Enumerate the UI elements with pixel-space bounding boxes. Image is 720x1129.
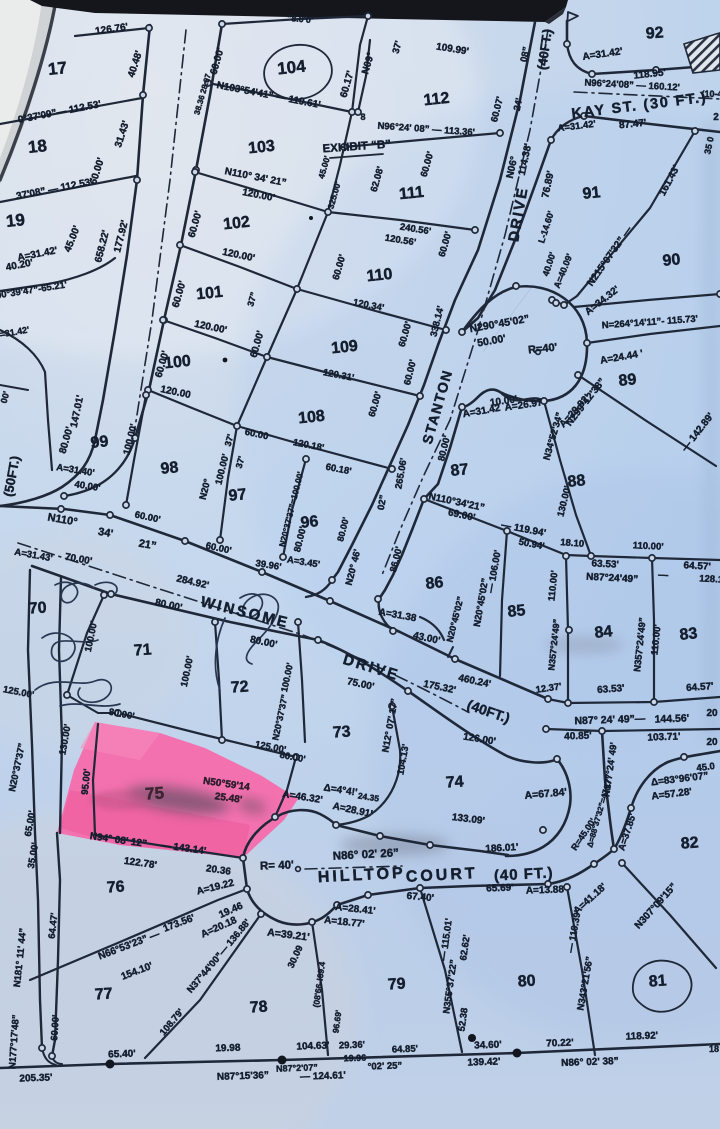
svg-text:101: 101 [195, 284, 223, 304]
svg-text:N86° 02' 38”: N86° 02' 38” [561, 1056, 619, 1069]
svg-text:87: 87 [450, 461, 470, 480]
svg-text:109: 109 [330, 338, 358, 358]
svg-text:84: 84 [594, 623, 614, 642]
svg-text:90: 90 [662, 251, 682, 270]
svg-text:°02' 25”: °02' 25” [367, 1060, 402, 1072]
svg-text:70: 70 [28, 599, 47, 617]
svg-text:186.01': 186.01' [485, 842, 518, 855]
svg-text:104: 104 [276, 57, 307, 79]
svg-text:(10-4: (10-4 [701, 89, 720, 99]
svg-text:97: 97 [228, 486, 248, 505]
svg-text:77: 77 [94, 985, 113, 1003]
svg-text:92: 92 [645, 24, 664, 42]
svg-text:20: 20 [706, 708, 718, 719]
svg-text:83: 83 [679, 625, 699, 644]
svg-text:144.56': 144.56' [654, 712, 689, 725]
svg-text:A=13.88: A=13.88 [526, 884, 565, 896]
svg-text:102: 102 [222, 214, 250, 234]
svg-text:85: 85 [507, 602, 527, 621]
svg-text:8: 8 [360, 112, 365, 122]
svg-text:64.85': 64.85' [392, 1044, 418, 1056]
svg-text:19.98: 19.98 [215, 1043, 241, 1055]
svg-text:103: 103 [247, 138, 275, 158]
svg-text:73: 73 [332, 723, 351, 741]
svg-text:74: 74 [445, 773, 464, 791]
svg-text:99: 99 [90, 433, 110, 452]
svg-text:40.85': 40.85' [564, 731, 592, 743]
svg-text:34.60': 34.60' [474, 1040, 502, 1052]
svg-text:76: 76 [106, 878, 125, 896]
svg-text:112: 112 [423, 90, 451, 110]
svg-text:65.69': 65.69' [486, 883, 514, 895]
svg-text:205.35': 205.35' [19, 1072, 52, 1084]
svg-text:82: 82 [680, 834, 699, 852]
svg-text:63.53': 63.53' [597, 683, 625, 696]
svg-text:(40 FT.): (40 FT.) [494, 864, 554, 884]
svg-text:72: 72 [230, 678, 249, 696]
svg-text:111: 111 [398, 184, 425, 204]
svg-text:65.40': 65.40' [108, 1049, 136, 1061]
svg-text:64.57': 64.57' [683, 560, 711, 572]
svg-text:81: 81 [648, 972, 667, 990]
svg-text:71: 71 [133, 641, 152, 659]
svg-text:89: 89 [618, 371, 638, 390]
svg-text:118.92': 118.92' [626, 1030, 659, 1042]
svg-text:18: 18 [709, 1044, 719, 1054]
svg-text:79: 79 [387, 975, 406, 993]
svg-text:17: 17 [47, 58, 68, 79]
svg-text:80: 80 [517, 972, 536, 990]
svg-text:—: — [658, 570, 669, 582]
svg-text:N87°15'36”: N87°15'36” [217, 1070, 269, 1083]
svg-text:110.00': 110.00' [632, 540, 663, 553]
svg-text:139.42': 139.42' [467, 1056, 500, 1068]
svg-text:104.63': 104.63' [296, 1040, 329, 1052]
svg-text:18: 18 [27, 136, 48, 157]
svg-text:63.53': 63.53' [591, 558, 619, 570]
svg-text:91: 91 [582, 184, 602, 203]
svg-text:19: 19 [5, 210, 26, 231]
svg-text:29.36': 29.36' [339, 1040, 365, 1052]
svg-text:128.1: 128.1 [699, 573, 720, 585]
svg-text:103.71': 103.71' [647, 731, 680, 743]
svg-text:18.10: 18.10 [560, 537, 584, 550]
svg-text:N87°2'07”: N87°2'07” [276, 1062, 318, 1073]
svg-text:86: 86 [425, 574, 445, 593]
svg-text:45.0: 45.0 [696, 761, 716, 774]
svg-text:98: 98 [160, 459, 180, 478]
svg-text:78: 78 [249, 998, 268, 1016]
svg-text:110: 110 [366, 266, 394, 286]
svg-text:2: 2 [713, 112, 719, 123]
svg-text:64.57': 64.57' [686, 681, 714, 694]
svg-text:19.96: 19.96 [343, 1053, 366, 1064]
svg-text:N87° 24' 49”—: N87° 24' 49”— [574, 713, 646, 727]
svg-text:108: 108 [297, 408, 325, 428]
svg-text:R= 40': R= 40' [260, 859, 294, 872]
svg-text:70.22': 70.22' [546, 1038, 574, 1050]
svg-text:20: 20 [706, 737, 718, 748]
svg-text:75: 75 [145, 783, 165, 803]
svg-text:60.00': 60.00' [49, 1014, 62, 1041]
